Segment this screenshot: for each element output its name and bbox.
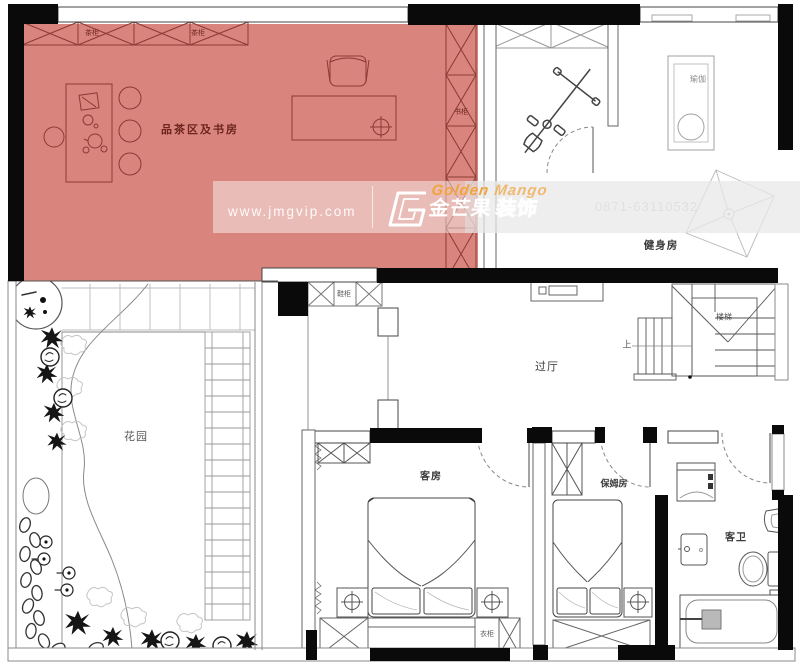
spin-bike-icon [503,52,612,170]
brand-cn: 金芒果 [427,198,493,220]
single-bed [553,500,622,617]
watermark-url: www.jmgvip.com [228,204,357,219]
watermark-divider [372,186,373,228]
nanny-room [552,432,652,652]
brand-en-word1: Golden [430,182,490,199]
watermark-brand: Golden Mango 金芒果装饰 [427,183,602,220]
pergola-grid [62,284,255,330]
yoga-mat [668,56,714,150]
bath-door [722,433,770,483]
watermark-phone: 0871-63110532 [595,199,698,214]
garden-area [10,277,258,657]
nightstand [624,588,652,617]
shoe-cabinet-row [308,282,382,306]
hallway-area [531,280,777,380]
cabinet-x [318,443,370,463]
pond [23,478,49,514]
console-table [531,280,603,301]
floor-plan-drawing [0,0,800,669]
floor-plan: 茶柜 茶柜 品茶区及书房 书柜 健身房 瑜伽 过厅 楼梯 上 花园 客房 保姆房… [0,0,800,669]
curtain-squiggle [315,582,321,614]
double-bed [368,498,475,617]
gym-door [547,127,593,173]
sink [678,534,707,565]
brand-en-word2: Mango [493,182,549,199]
brand-suffix: 装饰 [494,198,539,220]
wardrobe-x [552,443,582,495]
planter-icon [10,277,62,329]
guest-room [315,432,529,655]
nanny-door [600,432,650,487]
stairs [632,284,777,380]
washing-machine [677,463,715,501]
gym-cabinets [492,22,610,48]
guest-room-door [477,432,529,487]
entry-corridor [308,282,398,430]
bathtub [680,595,783,648]
deck-grid [205,332,250,620]
tea-study-zone [10,22,478,281]
